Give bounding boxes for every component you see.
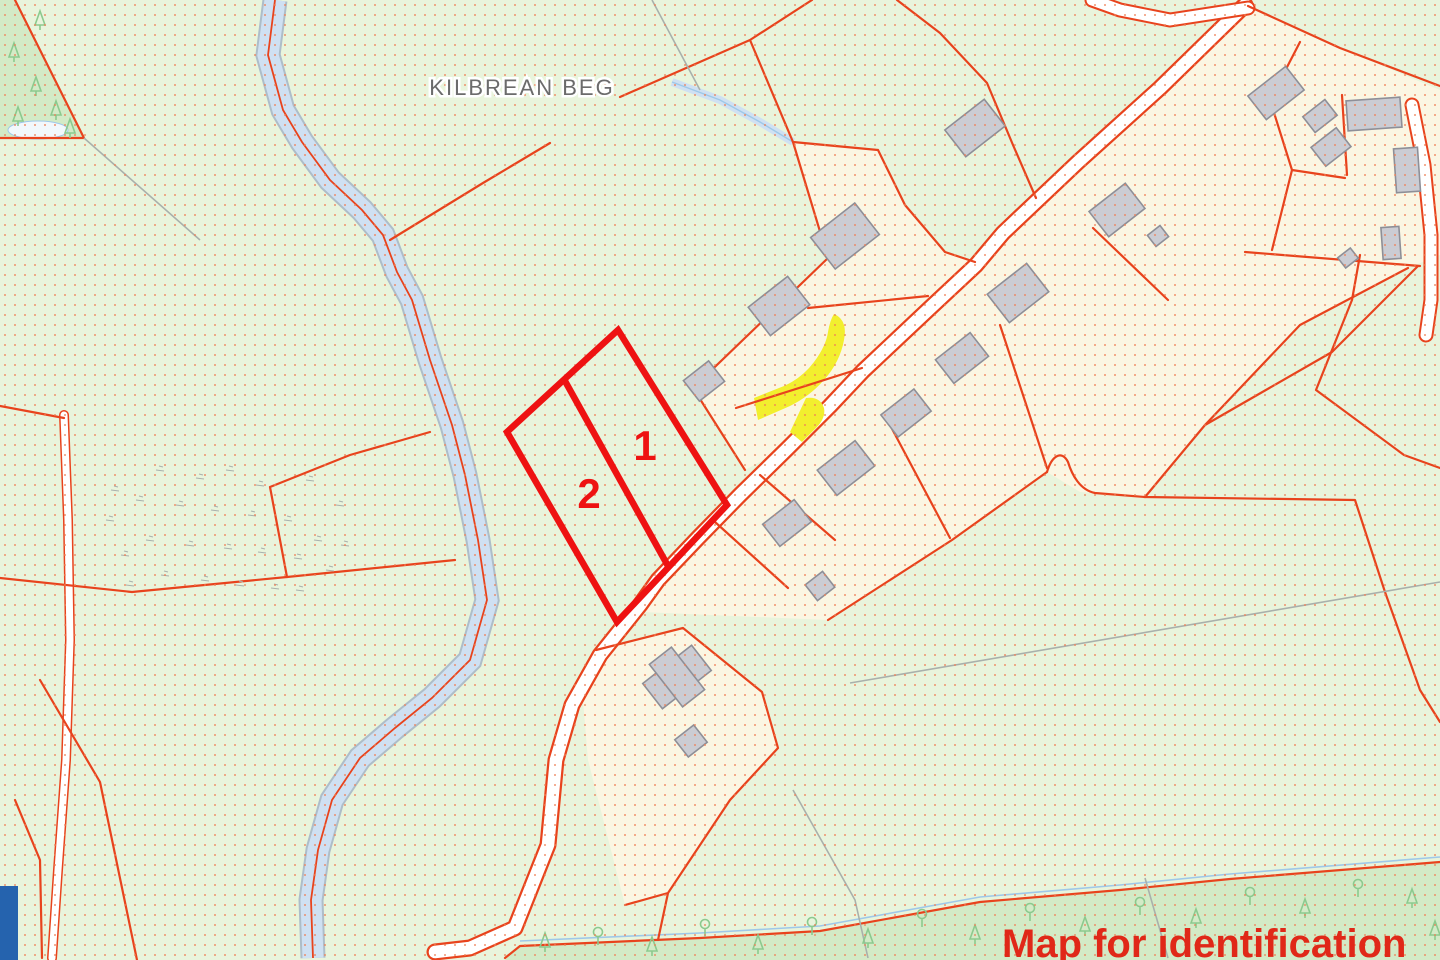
map-corner-blue-block [0, 886, 18, 960]
plot-1-label: 1 [633, 422, 656, 469]
dot-stipple-overlay [0, 0, 1440, 960]
map-viewport[interactable]: 1 2 KILBREAN BEG Map for identification [0, 0, 1440, 960]
plot-2-label: 2 [577, 470, 600, 517]
watermark-text: Map for identification [1002, 922, 1406, 960]
townland-label: KILBREAN BEG [429, 75, 614, 100]
